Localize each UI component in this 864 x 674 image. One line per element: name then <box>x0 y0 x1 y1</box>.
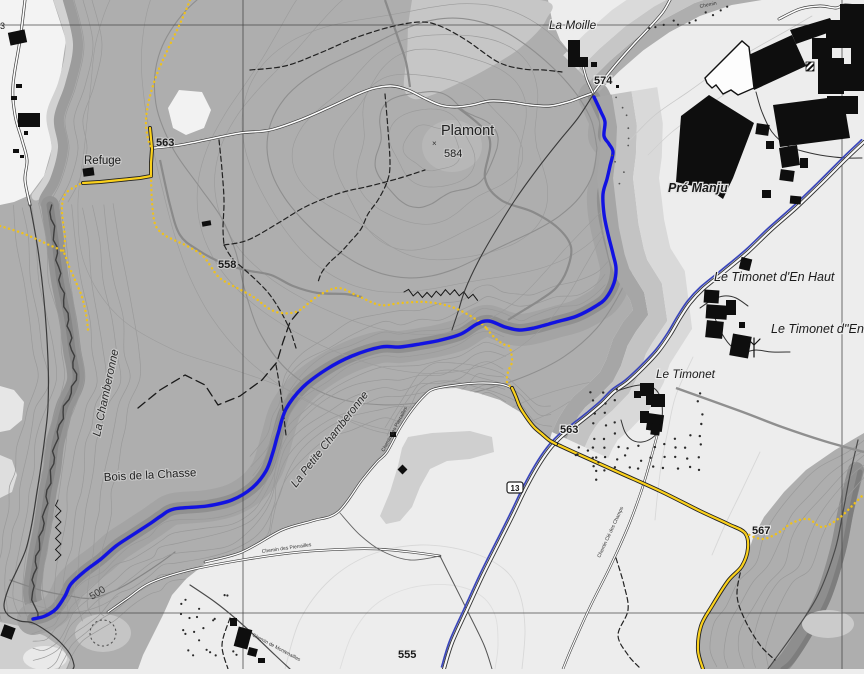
svg-text:574: 574 <box>594 75 613 87</box>
svg-text:13: 13 <box>511 484 520 493</box>
svg-text:3: 3 <box>0 21 5 31</box>
svg-text:555: 555 <box>398 649 416 661</box>
svg-text:558: 558 <box>218 259 236 271</box>
svg-text:Pré Manju: Pré Manju <box>668 181 728 195</box>
svg-text:Le Timonet d''En: Le Timonet d''En <box>771 322 864 336</box>
svg-text:×: × <box>432 139 437 148</box>
svg-text:Plamont: Plamont <box>441 123 494 139</box>
svg-text:584: 584 <box>444 148 462 160</box>
svg-text:Le Timonet d'En Haut: Le Timonet d'En Haut <box>714 270 835 284</box>
svg-text:Refuge: Refuge <box>84 155 121 167</box>
svg-text:563: 563 <box>560 424 578 436</box>
svg-text:Le Timonet: Le Timonet <box>656 367 716 381</box>
svg-text:563: 563 <box>156 137 174 149</box>
svg-text:La Moille: La Moille <box>549 18 597 32</box>
svg-text:567: 567 <box>752 525 770 537</box>
